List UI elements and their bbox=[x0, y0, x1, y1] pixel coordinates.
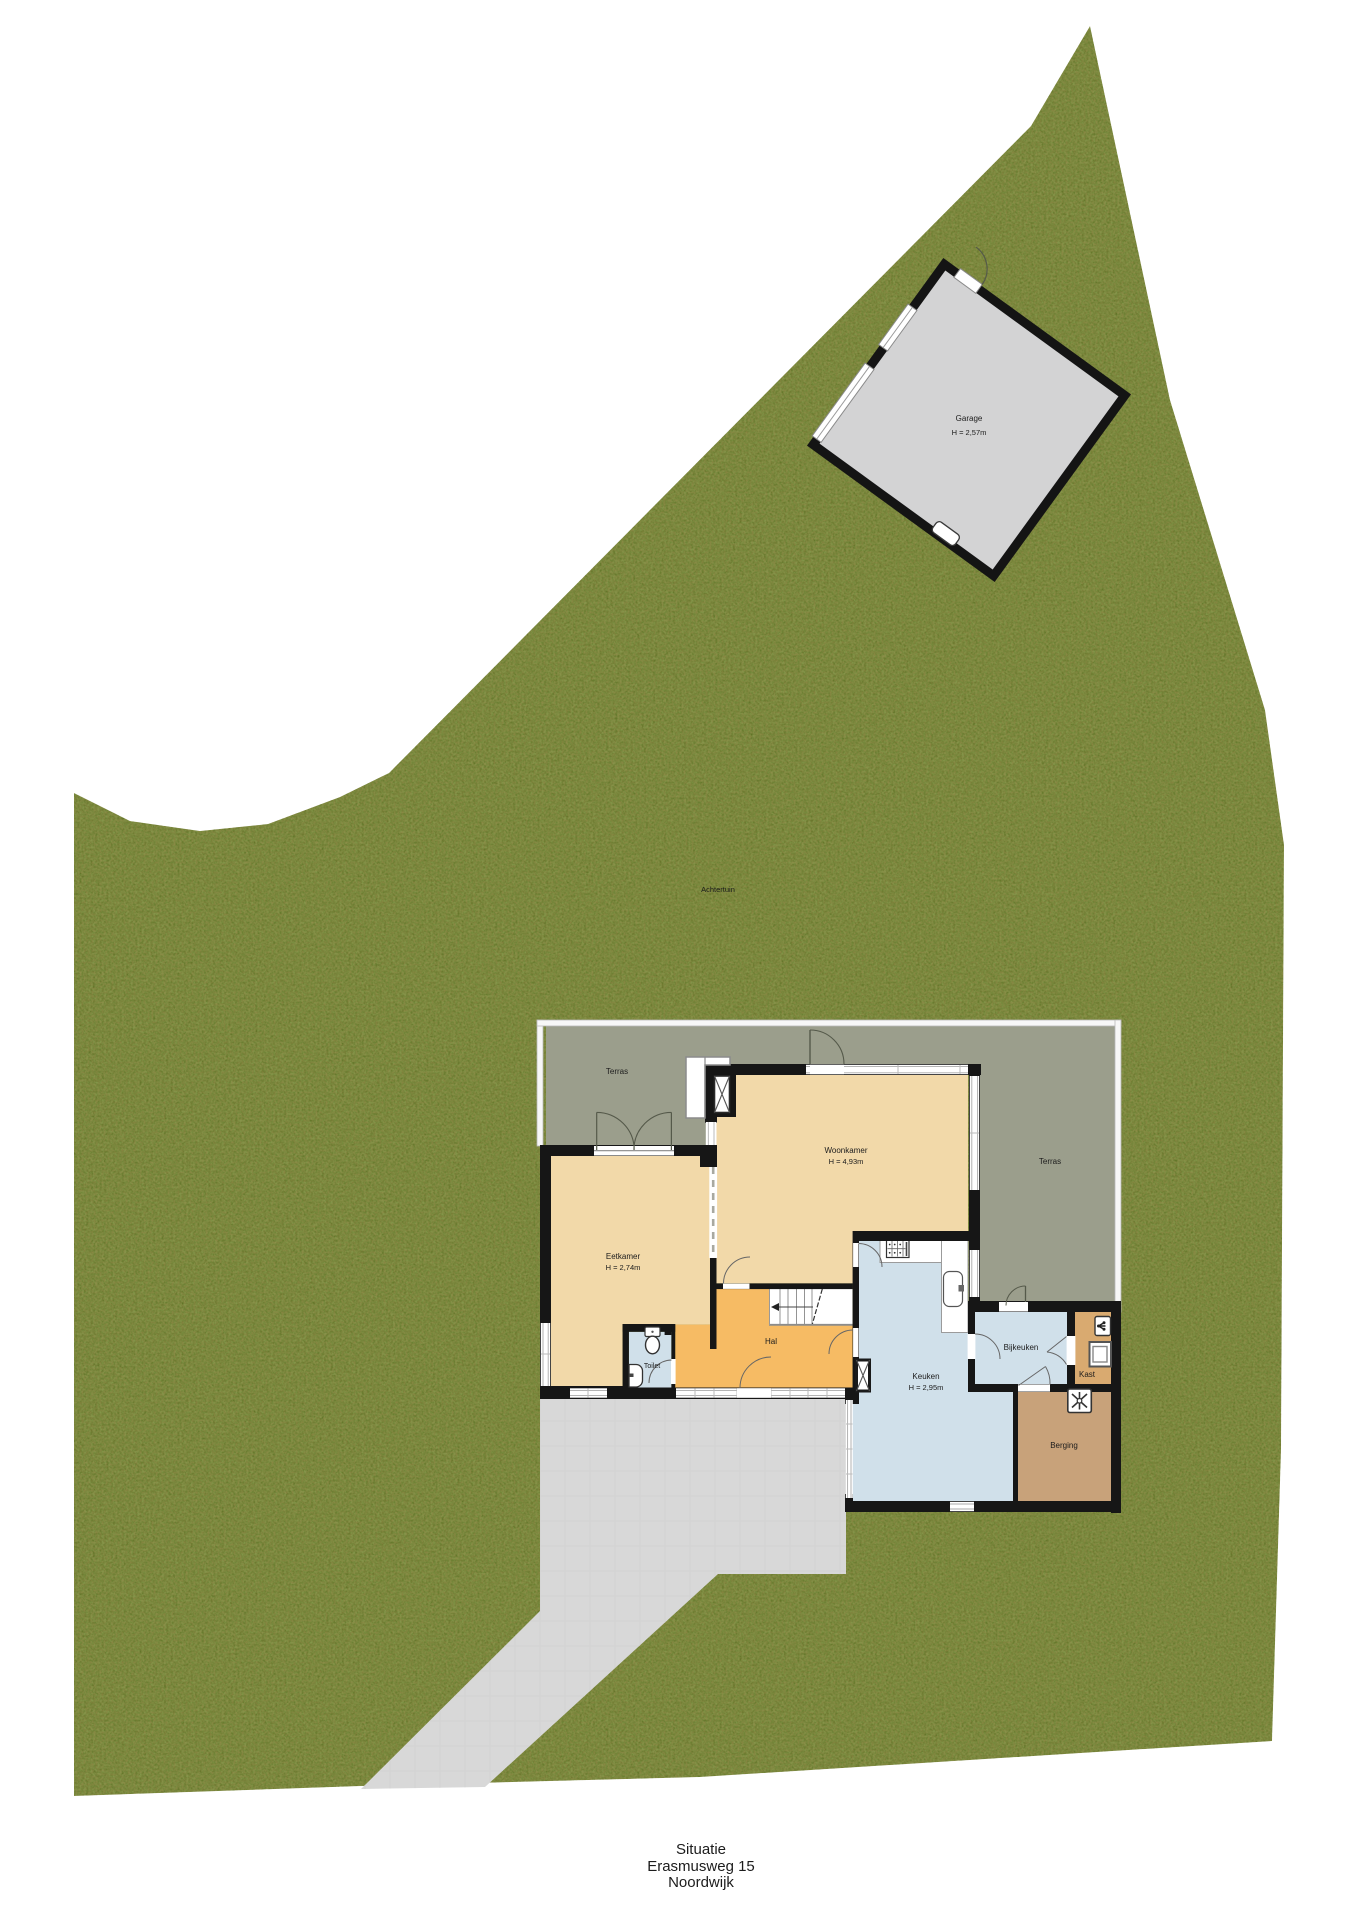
svg-text:H = 4,93m: H = 4,93m bbox=[829, 1157, 864, 1166]
svg-text:Berging: Berging bbox=[1050, 1441, 1078, 1450]
svg-text:Garage: Garage bbox=[956, 414, 983, 423]
svg-text:Woonkamer: Woonkamer bbox=[825, 1146, 868, 1155]
svg-text:Terras: Terras bbox=[1039, 1157, 1061, 1166]
svg-text:Noordwijk: Noordwijk bbox=[668, 1874, 734, 1891]
svg-text:Bijkeuken: Bijkeuken bbox=[1004, 1343, 1039, 1352]
svg-text:Toilet: Toilet bbox=[644, 1363, 660, 1370]
svg-text:H = 2,95m: H = 2,95m bbox=[909, 1383, 944, 1392]
svg-text:H = 2,57m: H = 2,57m bbox=[952, 428, 987, 437]
svg-text:H = 2,74m: H = 2,74m bbox=[606, 1263, 641, 1272]
svg-text:Terras: Terras bbox=[606, 1067, 628, 1076]
svg-text:Keuken: Keuken bbox=[912, 1372, 939, 1381]
svg-text:Achtertuin: Achtertuin bbox=[701, 885, 735, 894]
svg-text:Hal: Hal bbox=[765, 1337, 777, 1346]
svg-text:Erasmusweg 15: Erasmusweg 15 bbox=[647, 1858, 755, 1875]
svg-text:Kast: Kast bbox=[1079, 1370, 1096, 1379]
svg-text:Eetkamer: Eetkamer bbox=[606, 1252, 641, 1261]
svg-text:Situatie: Situatie bbox=[676, 1841, 726, 1858]
